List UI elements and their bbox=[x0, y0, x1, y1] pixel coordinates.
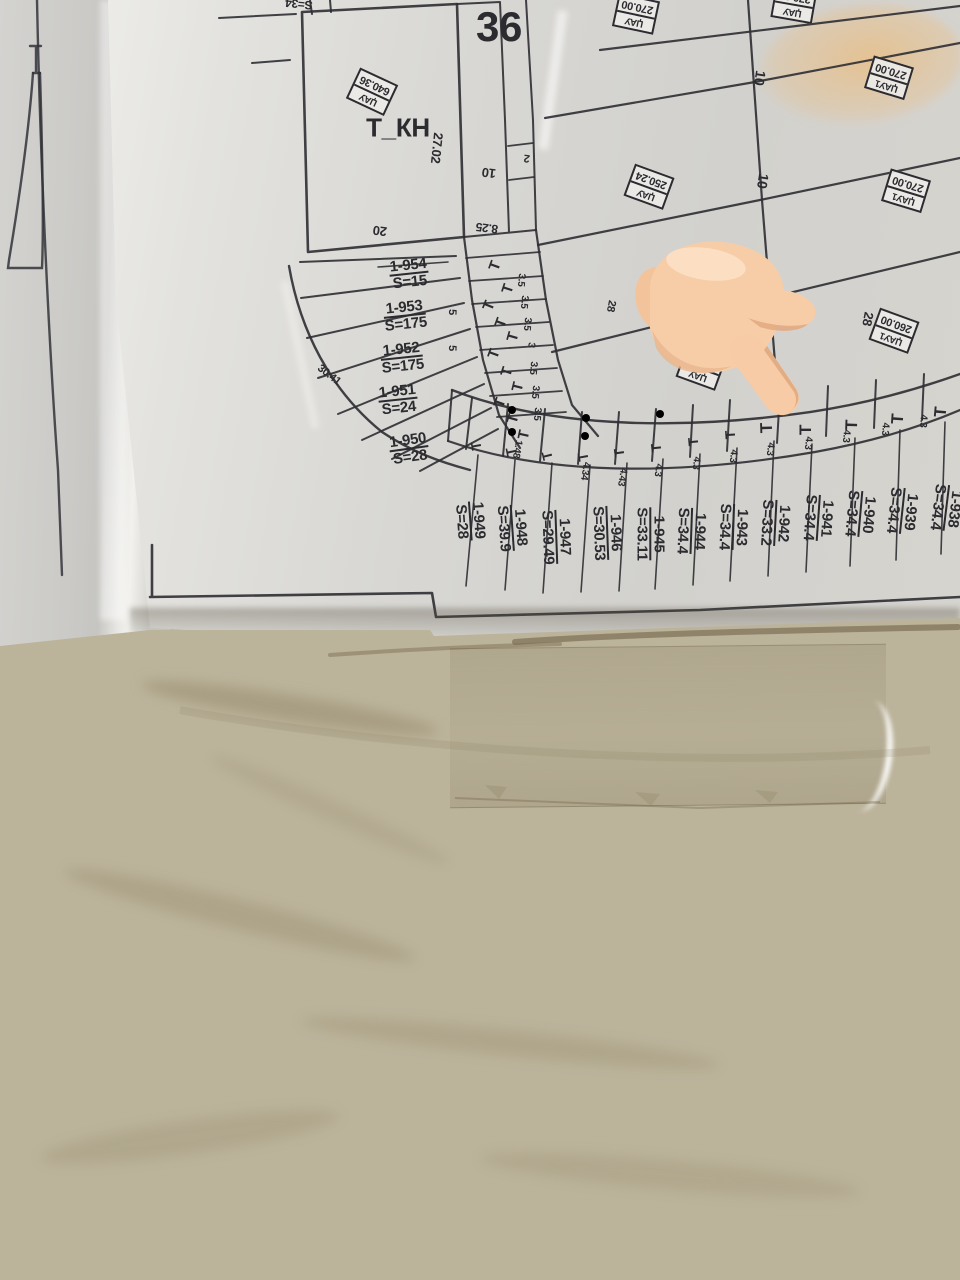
dimension-label: 8.25 bbox=[475, 220, 499, 237]
t-symbol: Т bbox=[504, 412, 523, 425]
fan-parcel-label: 1-953S=175 bbox=[382, 298, 427, 335]
parcel-area: S=34.4 bbox=[800, 494, 818, 541]
t-symbol: Т bbox=[931, 406, 952, 418]
t-symbol: Т bbox=[479, 299, 498, 314]
area-stamp: ЏАУ1260.00 bbox=[869, 308, 920, 354]
t-symbol: Т bbox=[504, 330, 523, 343]
dimension-label: 4.3 bbox=[690, 456, 703, 470]
parcel-id: 1-945 bbox=[649, 507, 666, 560]
dimension-label: 4.34 bbox=[578, 461, 592, 481]
strip-parcel-label: 1-948S=39.9 bbox=[494, 504, 530, 552]
photo-of-cadastral-plan: { "scene": { "description": "Photograph … bbox=[0, 0, 960, 1280]
floor-marks bbox=[0, 600, 960, 1280]
strip-parcel-label: 1-938S=34.4 bbox=[927, 483, 960, 533]
parcel-area: S=28 bbox=[452, 502, 470, 542]
dimension-label: 28 bbox=[604, 299, 618, 313]
strip-parcel-label: 1-945S=33.11 bbox=[634, 507, 667, 560]
pointing-hand-emoji bbox=[628, 230, 828, 422]
t-symbol: Т bbox=[484, 347, 503, 361]
parcel-area: S=33.2 bbox=[758, 499, 776, 546]
parcel-area: S=15 bbox=[390, 273, 430, 292]
strip-parcel-label: 1-940S=34.4 bbox=[842, 490, 878, 539]
t-symbol: Т bbox=[574, 452, 591, 463]
t-symbol: Т bbox=[509, 381, 528, 394]
t-symbol: Т bbox=[490, 396, 509, 410]
dimension-label: 2 bbox=[523, 152, 530, 165]
t-symbol: Т bbox=[685, 437, 702, 447]
area-stamp: ЏАУ250.24 bbox=[624, 164, 675, 210]
parcel-tkn-label: Т_КН bbox=[366, 113, 430, 144]
dimension-label: 4.3 bbox=[802, 436, 814, 450]
strip-parcel-label: 1-949S=28 bbox=[452, 500, 487, 541]
area-stamp: ЏАУ640.36 bbox=[346, 68, 398, 116]
parcel-area: S=28 bbox=[390, 447, 431, 468]
dimension-label: 20 bbox=[372, 223, 388, 240]
dimension-label: 4.3 bbox=[652, 463, 665, 477]
dimension-label: 27.02 bbox=[428, 132, 446, 164]
parcel-id: 1-943 bbox=[731, 504, 750, 551]
fan-parcel-label: 1-951S=24 bbox=[377, 382, 419, 418]
parcel-area: S=175 bbox=[384, 315, 428, 335]
block-number-label: 36 bbox=[476, 3, 522, 51]
area-stamp: ЏАУ270.00 bbox=[770, 0, 817, 24]
dimension-label: 3.5 bbox=[531, 407, 543, 421]
dimension-label: 3 bbox=[525, 342, 536, 348]
dimension-label: 3.5 bbox=[529, 385, 541, 399]
parcel-area: S=175 bbox=[381, 357, 425, 377]
strip-parcel-label: 1-946S=30.53 bbox=[590, 505, 624, 560]
strip-parcel-label: 1-943S=34.4 bbox=[716, 503, 750, 550]
t-symbol: Т bbox=[485, 259, 504, 273]
t-symbol: Т bbox=[648, 443, 665, 453]
parcel-area: S=24 bbox=[379, 399, 419, 418]
parcel-area: S=34.4 bbox=[842, 490, 861, 537]
t-symbol: Т bbox=[611, 448, 628, 458]
strip-parcel-label: 1-947S=29.49 bbox=[539, 509, 573, 564]
strip-parcel-label: 1-939S=34.4 bbox=[883, 486, 920, 535]
dimension-label: 4.3 bbox=[727, 449, 739, 463]
area-stamp: ЏАУ270.00 bbox=[612, 0, 660, 35]
dimension-label: 10 bbox=[481, 165, 497, 182]
t-symbol: Т bbox=[491, 316, 510, 330]
parcel-id: 1-947 bbox=[554, 509, 573, 564]
dimension-label: 3.5 bbox=[518, 295, 530, 309]
funnel-shape-left bbox=[8, 73, 43, 268]
dimension-label: 4.3 bbox=[764, 442, 776, 456]
parcel-id: 1-946 bbox=[605, 505, 624, 560]
t-symbol: Т bbox=[888, 413, 909, 424]
dimension-label: 4.3 bbox=[840, 429, 852, 443]
dimension-label: 3.5 bbox=[521, 317, 533, 331]
dimension-label: 4.43 bbox=[615, 467, 629, 487]
parcel-area: S=30.53 bbox=[590, 506, 607, 561]
dimension-label: 3.5 bbox=[527, 361, 539, 375]
t-symbol: Т bbox=[538, 450, 556, 462]
t-symbol: Т bbox=[757, 423, 777, 434]
t-symbol: Т bbox=[498, 365, 517, 379]
parcel-area: S=34.4 bbox=[716, 503, 733, 550]
area-stamp: ЏАУ1270.00 bbox=[881, 169, 931, 213]
fan-parcel-label: 1-952S=175 bbox=[379, 340, 424, 377]
dimension-label: 4.3 bbox=[917, 414, 929, 428]
fan-parcel-label: 1-954S=15 bbox=[388, 256, 430, 292]
dimension-label: 3.5 bbox=[515, 273, 527, 287]
dimension-label: 4.3 bbox=[879, 422, 891, 436]
strip-parcel-label: 1-942S=33.2 bbox=[758, 499, 793, 547]
parcel-area: S=34.4 bbox=[674, 507, 691, 554]
area-stamp: ЏАУ1270.00 bbox=[864, 56, 914, 100]
strip-parcel-label: 1-941S=34.4 bbox=[800, 494, 836, 542]
t-symbol: Т bbox=[467, 441, 484, 452]
t-symbol: Т bbox=[722, 430, 739, 439]
parcel-area: S=29.49 bbox=[539, 510, 556, 565]
parcel-area: S=39.9 bbox=[494, 505, 512, 552]
parcel-id: 1-944 bbox=[689, 508, 708, 555]
dimension-label: 5 bbox=[446, 345, 458, 351]
dimension-label: 10 bbox=[754, 172, 772, 189]
fan-parcel-label: 1-950S=28 bbox=[387, 430, 430, 468]
dimension-label: 30.41 bbox=[315, 362, 343, 387]
t-symbol: Т bbox=[796, 425, 816, 435]
dimension-label: 5 bbox=[446, 309, 458, 315]
strip-parcel-label: 1-944S=34.4 bbox=[674, 507, 708, 554]
parcel-area: S=33.11 bbox=[634, 507, 649, 560]
t-symbol: Т bbox=[842, 420, 862, 431]
dimension-label: S=34 bbox=[285, 0, 313, 12]
dimension-label: 10 bbox=[751, 69, 769, 86]
